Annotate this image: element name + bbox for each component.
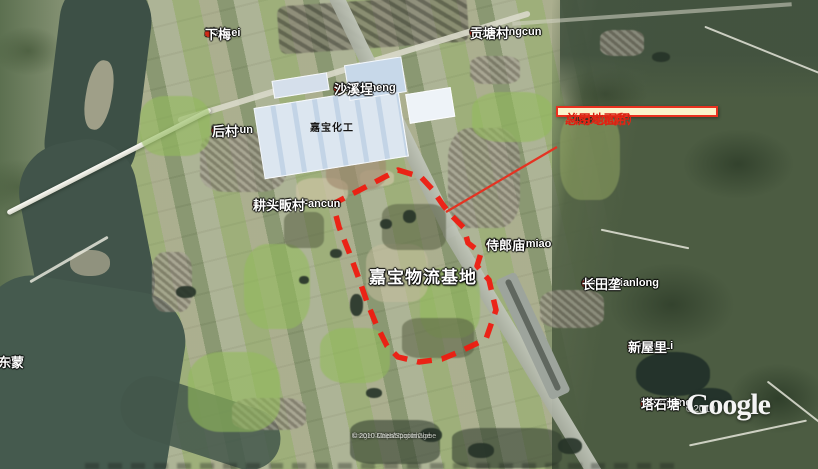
terrain-patch xyxy=(652,52,670,62)
terrain-patch xyxy=(244,244,310,329)
google-logo: Google xyxy=(686,390,770,420)
place-name-chinese: 东蒙 xyxy=(0,352,24,371)
site-label: 嘉宝物流基地 xyxy=(369,263,477,288)
terrain-patch xyxy=(140,96,210,156)
terrain-patch xyxy=(366,388,382,398)
terrain-patch xyxy=(152,252,192,312)
place-name-chinese: 贡塘村 xyxy=(470,23,509,42)
place-name-chinese: 沙溪埕 xyxy=(334,79,373,98)
area-callout: 总用地面积 343890M2（515.8 亩） xyxy=(556,106,718,117)
factory-building xyxy=(271,72,329,99)
terrain-patch xyxy=(330,249,342,258)
map-viewport[interactable]: Xiamei 下梅 Gongtangcun 贡塘村 Shaxicheng 沙溪埕… xyxy=(0,0,818,469)
terrain-patch xyxy=(320,328,390,383)
place-name-chinese: 下梅 xyxy=(205,24,231,43)
terrain-patch xyxy=(188,352,280,432)
place-name-chinese: 长田垄 xyxy=(582,274,621,293)
terrain-patch xyxy=(299,276,309,284)
imagery-credit-line: © 2010 Cnes/Spot Image xyxy=(352,432,431,441)
place-name-chinese: 后村 xyxy=(212,121,238,140)
terrain-patch xyxy=(402,318,474,358)
terrain-patch xyxy=(540,290,604,328)
terrain-patch xyxy=(470,56,520,84)
terrain-patch xyxy=(558,438,582,454)
terrain-patch xyxy=(350,420,440,464)
terrain-patch xyxy=(176,286,196,298)
terrain-patch xyxy=(350,294,363,316)
terrain-patch xyxy=(403,210,416,223)
factory-building xyxy=(405,87,455,124)
place-name-chinese: 侍郎庙 xyxy=(486,235,525,254)
place-name-chinese: 塔石塘 xyxy=(641,394,680,413)
terrain-patch xyxy=(380,219,392,229)
place-name-chinese: 新屋里 xyxy=(628,337,667,356)
place-name-chinese: 耕头畈村 xyxy=(253,195,305,214)
terrain-patch xyxy=(468,443,494,458)
callout-value-mu: （515.8 亩） xyxy=(565,111,640,128)
factory-label: 嘉宝化工 xyxy=(310,119,354,134)
terrain-patch xyxy=(600,30,644,56)
terrain-patch xyxy=(472,92,552,142)
status-bar-clipped xyxy=(85,463,675,469)
terrain-patch xyxy=(284,212,324,248)
